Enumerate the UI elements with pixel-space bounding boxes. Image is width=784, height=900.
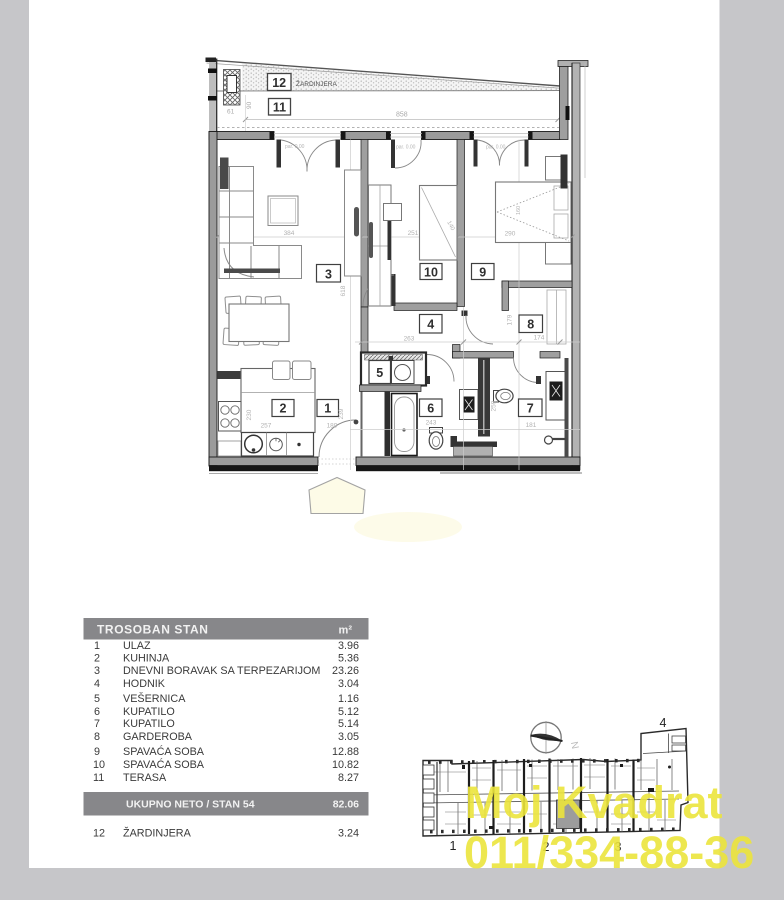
svg-text:2: 2 — [94, 653, 100, 665]
svg-text:179: 179 — [507, 314, 514, 325]
svg-text:par. 0.00: par. 0.00 — [285, 144, 305, 150]
svg-text:KUPATILO: KUPATILO — [123, 718, 175, 730]
svg-text:2: 2 — [280, 402, 287, 416]
svg-text:257: 257 — [261, 423, 272, 430]
svg-text:KUPATILO: KUPATILO — [123, 706, 175, 718]
svg-text:DNEVNI BORAVAK SA TERPEZARIJOM: DNEVNI BORAVAK SA TERPEZARIJOM — [123, 665, 320, 677]
svg-text:4: 4 — [427, 318, 434, 332]
svg-text:90: 90 — [246, 101, 253, 109]
svg-text:82.06: 82.06 — [333, 799, 359, 811]
svg-text:3.24: 3.24 — [338, 828, 359, 840]
svg-text:1: 1 — [450, 839, 457, 853]
svg-text:3.05: 3.05 — [338, 731, 359, 743]
svg-text:23.26: 23.26 — [332, 665, 359, 677]
svg-text:290: 290 — [505, 231, 516, 238]
svg-text:9: 9 — [94, 746, 100, 758]
svg-text:5: 5 — [94, 693, 100, 705]
svg-text:5.14: 5.14 — [338, 718, 359, 730]
svg-text:SPAVAĆA SOBA: SPAVAĆA SOBA — [123, 745, 205, 758]
svg-text:TERASA: TERASA — [123, 772, 167, 784]
svg-text:par. 0.00: par. 0.00 — [486, 145, 506, 151]
svg-text:4: 4 — [94, 678, 100, 690]
svg-text:230: 230 — [246, 409, 253, 420]
svg-text:10: 10 — [424, 266, 438, 280]
svg-text:858: 858 — [396, 112, 408, 119]
svg-text:189: 189 — [327, 423, 338, 430]
svg-text:N: N — [568, 741, 580, 750]
svg-text:12: 12 — [93, 828, 105, 840]
svg-text:VEŠERNICA: VEŠERNICA — [123, 692, 186, 705]
svg-text:12: 12 — [272, 76, 286, 90]
svg-text:11: 11 — [273, 101, 286, 115]
svg-text:ŽARDINJERA: ŽARDINJERA — [123, 827, 192, 840]
svg-text:6: 6 — [94, 706, 100, 718]
svg-text:1.16: 1.16 — [338, 693, 359, 705]
svg-text:6: 6 — [427, 402, 434, 416]
svg-text:3.04: 3.04 — [338, 678, 359, 690]
svg-text:3.96: 3.96 — [338, 640, 359, 652]
svg-text:m²: m² — [339, 625, 353, 637]
svg-text:ULAZ: ULAZ — [123, 640, 151, 652]
svg-text:HODNIK: HODNIK — [123, 678, 166, 690]
svg-text:7: 7 — [94, 718, 100, 730]
svg-text:7: 7 — [527, 402, 534, 416]
svg-text:5.36: 5.36 — [338, 653, 359, 665]
svg-text:GARDEROBA: GARDEROBA — [123, 731, 193, 743]
svg-text:8: 8 — [527, 318, 534, 332]
svg-text:263: 263 — [404, 336, 415, 343]
svg-text:618: 618 — [340, 285, 347, 296]
svg-text:UKUPNO NETO / STAN 54: UKUPNO NETO / STAN 54 — [126, 799, 255, 811]
svg-text:4: 4 — [660, 716, 667, 730]
svg-text:8.27: 8.27 — [338, 772, 359, 784]
svg-text:011/334-88-36: 011/334-88-36 — [464, 827, 754, 878]
svg-text:239: 239 — [338, 408, 345, 419]
svg-text:10.82: 10.82 — [332, 759, 359, 771]
svg-text:251: 251 — [408, 230, 419, 237]
svg-text:12.88: 12.88 — [332, 746, 359, 758]
svg-text:TROSOBAN STAN: TROSOBAN STAN — [97, 623, 209, 637]
svg-text:160: 160 — [516, 206, 522, 215]
svg-text:par. 0.00: par. 0.00 — [396, 145, 416, 151]
svg-text:384: 384 — [284, 230, 295, 237]
svg-text:Moj Kvadrat: Moj Kvadrat — [465, 777, 723, 828]
svg-text:8: 8 — [94, 731, 100, 743]
svg-text:3: 3 — [325, 268, 332, 282]
svg-text:181: 181 — [526, 422, 537, 429]
svg-text:SPAVAĆA SOBA: SPAVAĆA SOBA — [123, 758, 205, 771]
svg-text:KUHINJA: KUHINJA — [123, 653, 170, 665]
svg-text:5: 5 — [376, 366, 383, 380]
svg-text:174: 174 — [534, 335, 545, 342]
svg-text:243: 243 — [426, 420, 437, 427]
svg-text:11: 11 — [93, 772, 104, 784]
svg-text:9: 9 — [479, 266, 486, 280]
svg-text:1: 1 — [94, 640, 100, 652]
svg-text:5.12: 5.12 — [338, 706, 359, 718]
svg-text:259: 259 — [491, 400, 498, 411]
svg-text:ŽARDINJERA: ŽARDINJERA — [296, 79, 337, 88]
svg-text:10: 10 — [93, 759, 105, 771]
svg-text:1: 1 — [324, 402, 331, 416]
svg-text:61: 61 — [227, 109, 235, 116]
svg-text:3: 3 — [94, 665, 100, 677]
